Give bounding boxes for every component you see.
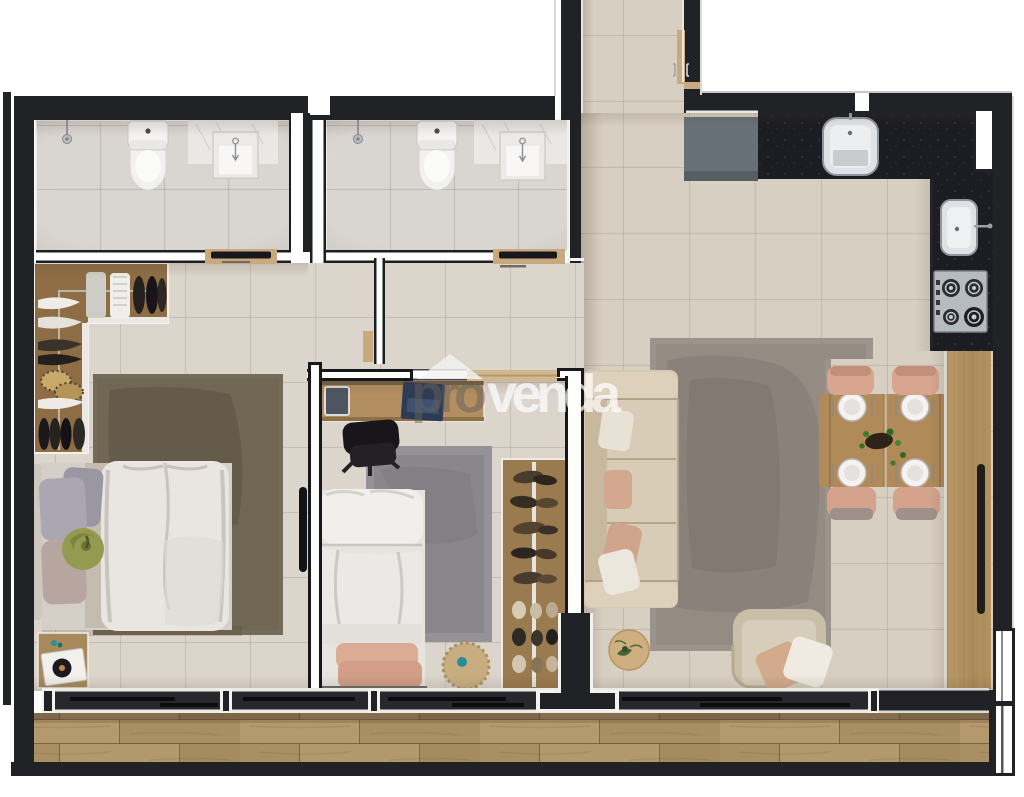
svg-text:pro: pro [411,364,485,424]
svg-text:venda: venda [487,364,622,424]
